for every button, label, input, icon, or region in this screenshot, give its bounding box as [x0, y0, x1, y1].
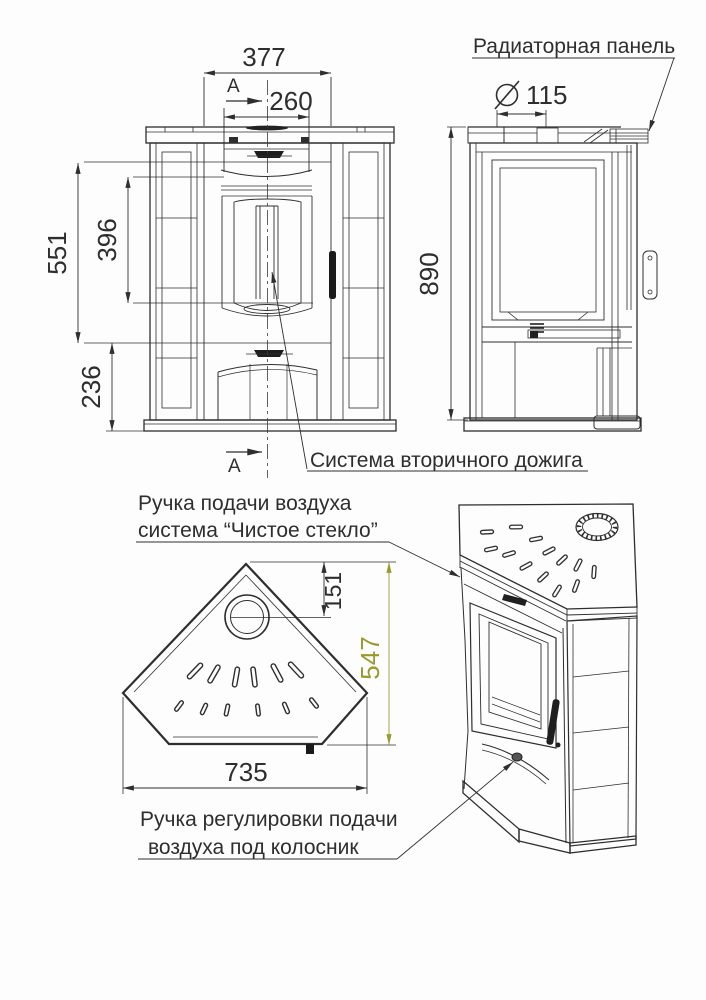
dim-396: 396 [92, 218, 122, 261]
iso-air-slider [502, 594, 527, 606]
label-clean-glass-2: система “Чистое стекло” [138, 519, 378, 542]
side-view [464, 127, 657, 431]
dim-151: 151 [320, 572, 346, 610]
dim-115: 115 [526, 80, 567, 110]
front-central-section [84, 143, 336, 420]
firebox [492, 160, 604, 320]
dim-236: 236 [76, 365, 106, 408]
side-dimensions: 890 115 [414, 80, 567, 420]
section-marker-top: А [226, 76, 262, 101]
front-right-column [343, 143, 384, 420]
label-grate-air-2: воздуха под колосник [148, 836, 359, 859]
label-clean-glass-1: Ручка подачи воздуха [138, 492, 352, 515]
grate-air-knob [512, 753, 522, 761]
hood-arch [221, 170, 312, 177]
front-base [144, 420, 396, 431]
callout-grate-air: Ручка регулировки подачи воздуха под кол… [138, 762, 513, 859]
lower-air-slider [254, 350, 284, 357]
iso-side-panel [563, 616, 637, 846]
front-view [84, 80, 396, 478]
section-letter-top: А [227, 76, 240, 97]
upper-air-slider [254, 151, 284, 158]
callout-secondary-afterburn: Система вторичного дожига [272, 272, 588, 472]
top-vent-slots [174, 661, 319, 716]
technical-drawing-sheet: 377 260 551 396 236 А А Система вторично… [0, 0, 706, 1000]
label-grate-air-1: Ручка регулировки подачи [140, 808, 398, 831]
door-handle-front [329, 251, 336, 299]
dim-890: 890 [414, 252, 444, 295]
front-glass-door [222, 196, 312, 316]
side-door-handle [643, 251, 657, 299]
label-secondary-afterburn: Система вторичного дожига [310, 449, 583, 472]
cap-top-vent-slot [246, 126, 288, 131]
front-top-cap [146, 126, 394, 143]
section-letter-bottom: А [228, 456, 241, 477]
front-left-column [156, 143, 197, 420]
diameter-symbol-icon [495, 81, 519, 109]
iso-top-band [460, 555, 637, 633]
side-interior [476, 143, 640, 429]
callout-clean-glass: Ручка подачи воздуха система “Чистое сте… [136, 492, 460, 577]
dim-377: 377 [242, 42, 285, 72]
label-radiator-panel: Радиаторная панель [473, 35, 675, 58]
side-cap [468, 127, 648, 143]
air-control-tab [306, 744, 314, 754]
dim-260: 260 [269, 86, 312, 116]
radiator-panel-bracket [610, 129, 648, 143]
front-body-outline [150, 143, 390, 420]
dim-547: 547 [355, 636, 385, 679]
iso-lower-panel [482, 744, 549, 784]
iso-flue-collar [576, 514, 618, 541]
callout-radiator-panel: Радиаторная панель [472, 35, 675, 131]
stove-drawing: 377 260 551 396 236 А А Система вторично… [0, 0, 706, 1000]
iso-door [470, 603, 561, 748]
iso-view [459, 504, 637, 853]
dim-551: 551 [42, 231, 72, 274]
iso-left-edge [461, 568, 468, 789]
section-marker-bottom: А [226, 452, 262, 477]
top-dimensions: 151 547 735 [123, 562, 396, 794]
cap-joint-left [229, 137, 238, 143]
grate [508, 312, 588, 320]
dim-735: 735 [224, 757, 267, 787]
flue-opening [225, 595, 331, 639]
front-dimensions: 377 260 551 396 236 А А [42, 42, 331, 477]
cap-joint-right [301, 137, 309, 143]
